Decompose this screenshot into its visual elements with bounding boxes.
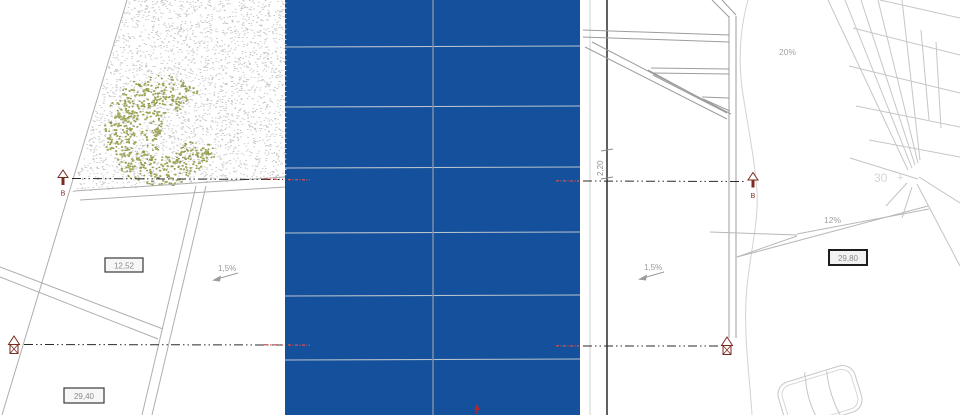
parking-grid [828, 0, 960, 170]
dimension-value: 29,80 [838, 254, 859, 263]
parcel-boundary-line [142, 186, 196, 415]
dimension-value: 29,40 [74, 392, 95, 401]
dimension-box-right: 29,80 [829, 250, 867, 265]
site-plan-canvas: 30 + B B [0, 0, 960, 415]
parcel-boundary-line [152, 186, 206, 415]
path-edge-line [0, 267, 163, 329]
section-marker-b-left-icon: B [58, 170, 68, 198]
station-label: 30 + [874, 171, 903, 185]
dimension-box-left-upper: 12,52 [105, 258, 143, 272]
station-number-label: 30 [874, 171, 888, 185]
section-letter: B [751, 193, 756, 200]
car-icon [774, 359, 867, 415]
dim-height-label: 2,20 [596, 160, 605, 176]
boundary-curve [740, 0, 757, 415]
panel-array [283, 0, 580, 415]
section-letter: B [61, 191, 66, 198]
retaining-structure [583, 0, 736, 338]
slope-label: 1,5% [644, 263, 662, 272]
benchmark-left-icon [9, 336, 20, 354]
section-line-dash [24, 345, 283, 346]
slope-label: 1,5% [218, 264, 236, 273]
road-wedge [710, 206, 929, 257]
section-line-dash [583, 181, 746, 182]
parcel-lines-left [0, 0, 285, 415]
benchmark-right-icon [722, 337, 733, 355]
dimension-value: 12,52 [114, 262, 135, 271]
slope-label-12: 12% [824, 215, 841, 225]
slope-annotation-right: 1,5% [638, 263, 664, 281]
slope-arrow-icon [638, 272, 664, 281]
parcel-boundary-line [2, 0, 127, 415]
slope-label-20: 20% [779, 47, 796, 57]
slope-arrow-icon [212, 273, 238, 282]
station-cross-mark: + [897, 172, 903, 184]
dimension-box-left-lower: 29,40 [64, 388, 104, 403]
tree-cluster [105, 76, 214, 186]
height-dimension: 2,20 [596, 149, 613, 179]
slope-annotation-left: 1,5% [212, 264, 238, 282]
site-plan-drawing: 30 + B B [0, 0, 960, 415]
path-edge-line [0, 277, 158, 339]
